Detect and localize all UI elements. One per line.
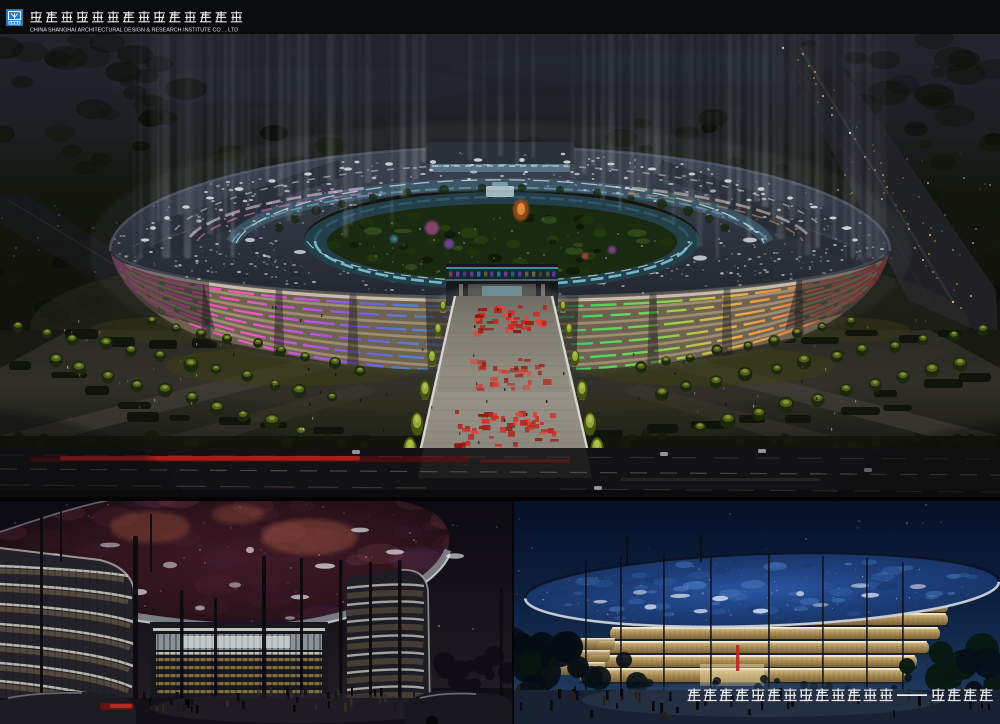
svg-text:CHINA SHANGHAI ARCHITECTURAL D: CHINA SHANGHAI ARCHITECTURAL DESIGN & RE… bbox=[30, 28, 238, 34]
